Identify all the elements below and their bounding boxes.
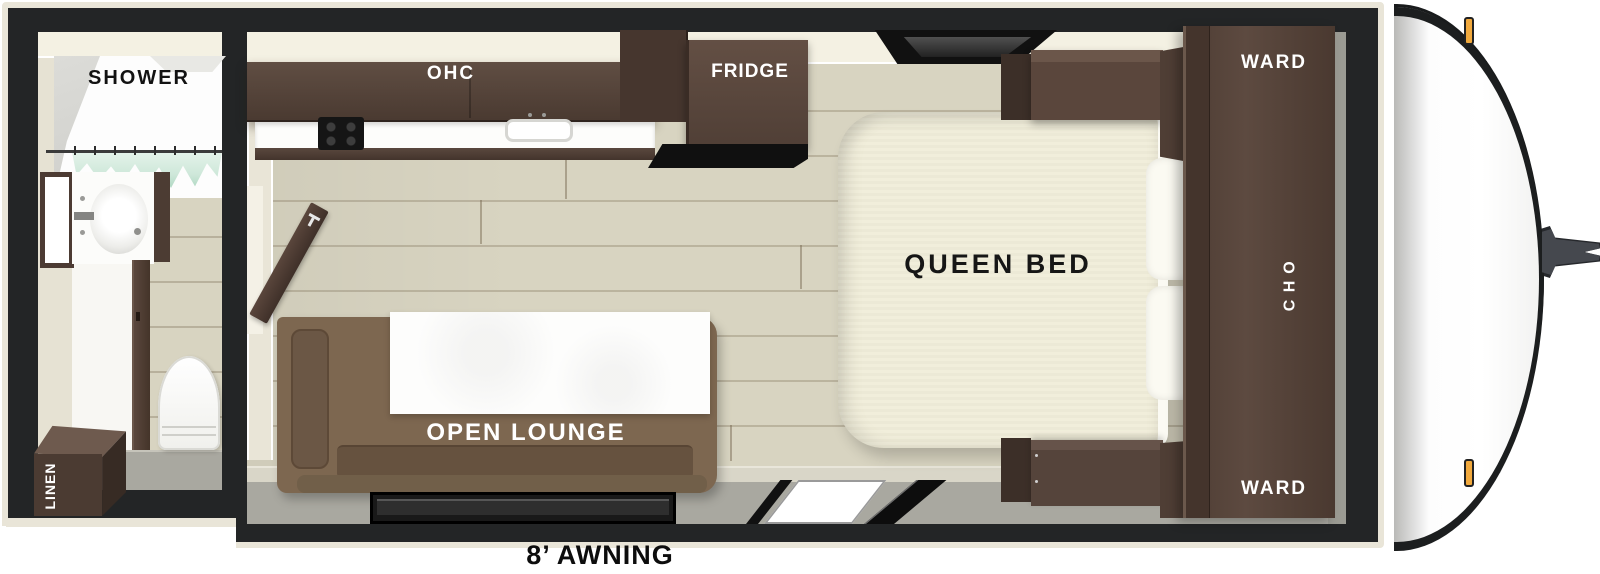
pantry-cabinet bbox=[620, 30, 688, 122]
kitchen-faucet bbox=[528, 113, 532, 117]
cabinet-handles bbox=[1035, 454, 1038, 457]
marker-light-bottom bbox=[1464, 459, 1474, 487]
toilet-hinge-line bbox=[162, 426, 216, 428]
door-handle bbox=[308, 217, 315, 226]
rear-outline-step bbox=[0, 526, 236, 574]
floor-plank-seam bbox=[730, 425, 732, 461]
floor-plank-seam bbox=[480, 200, 482, 244]
sink-drain bbox=[134, 228, 141, 235]
toilet-hinge-line bbox=[162, 434, 216, 436]
bed-overhead-cabinet bbox=[1031, 50, 1163, 120]
ward-top-label: WARD bbox=[1210, 50, 1338, 76]
queen-bed: QUEEN BED bbox=[838, 112, 1168, 448]
vanity-side-cabinet bbox=[154, 172, 170, 262]
wardrobe-tower: WARD OHC WARD bbox=[1183, 26, 1335, 518]
ward-bottom-label: WARD bbox=[1210, 476, 1338, 502]
hitch-coupler bbox=[1542, 229, 1600, 275]
shower-label: SHOWER bbox=[60, 64, 218, 92]
front-cap bbox=[1394, 4, 1544, 548]
bedside-cabinet bbox=[1001, 438, 1031, 502]
bathroom-mirror bbox=[40, 172, 74, 268]
queen-bed-label: QUEEN BED bbox=[838, 248, 1158, 280]
sofa-armrest bbox=[291, 329, 329, 469]
linen-cabinet: LINEN bbox=[34, 424, 126, 516]
bathroom-faucet bbox=[74, 212, 94, 220]
floorplan-canvas: SHOWER LINEN OHC bbox=[0, 0, 1600, 574]
linen-label: LINEN bbox=[42, 456, 58, 516]
faucet-knob bbox=[80, 196, 85, 201]
kitchen-counter-edge bbox=[255, 148, 655, 160]
bathroom-sink bbox=[90, 184, 148, 254]
open-lounge-label: OPEN LOUNGE bbox=[356, 418, 696, 448]
rear-outline-trim bbox=[6, 518, 236, 527]
lounge-table bbox=[390, 312, 710, 414]
bed-base-cabinet bbox=[1031, 440, 1163, 506]
door-handle bbox=[136, 312, 140, 321]
bathroom-inner-wall bbox=[72, 264, 134, 450]
faucet-knob bbox=[80, 230, 85, 235]
bedside-cabinet bbox=[1001, 54, 1031, 120]
shower-curtain-hooks bbox=[56, 146, 222, 155]
awning-label: 8’ AWNING bbox=[420, 538, 780, 572]
sofa-seat-cushion bbox=[337, 445, 693, 479]
wardrobe-side-panel bbox=[1186, 26, 1210, 518]
kitchen-sink bbox=[505, 119, 573, 142]
bathroom-vanity bbox=[72, 172, 154, 264]
lounge-window bbox=[370, 492, 676, 524]
bathroom-rear-wall bbox=[38, 32, 222, 58]
entry-door bbox=[746, 480, 952, 524]
fridge-base-trim bbox=[648, 144, 808, 168]
linen-cabinet-front: LINEN bbox=[34, 454, 102, 516]
kitchen-counter bbox=[255, 122, 655, 150]
kitchen-ohc-label: OHC bbox=[247, 62, 655, 86]
toilet bbox=[158, 356, 220, 450]
floor-plank-seam bbox=[800, 245, 802, 289]
marker-light-top bbox=[1464, 17, 1474, 45]
sofa-front-edge bbox=[297, 475, 707, 493]
bathroom-door bbox=[132, 260, 150, 450]
bathroom-divider-wall bbox=[222, 32, 247, 524]
lounge-window-glass bbox=[377, 499, 669, 515]
bedroom-ohc-label: OHC bbox=[1278, 246, 1302, 326]
fridge-label: FRIDGE bbox=[689, 60, 811, 84]
floor-plank-seam bbox=[565, 155, 567, 199]
refrigerator: FRIDGE bbox=[686, 40, 808, 148]
cooktop bbox=[318, 117, 364, 150]
